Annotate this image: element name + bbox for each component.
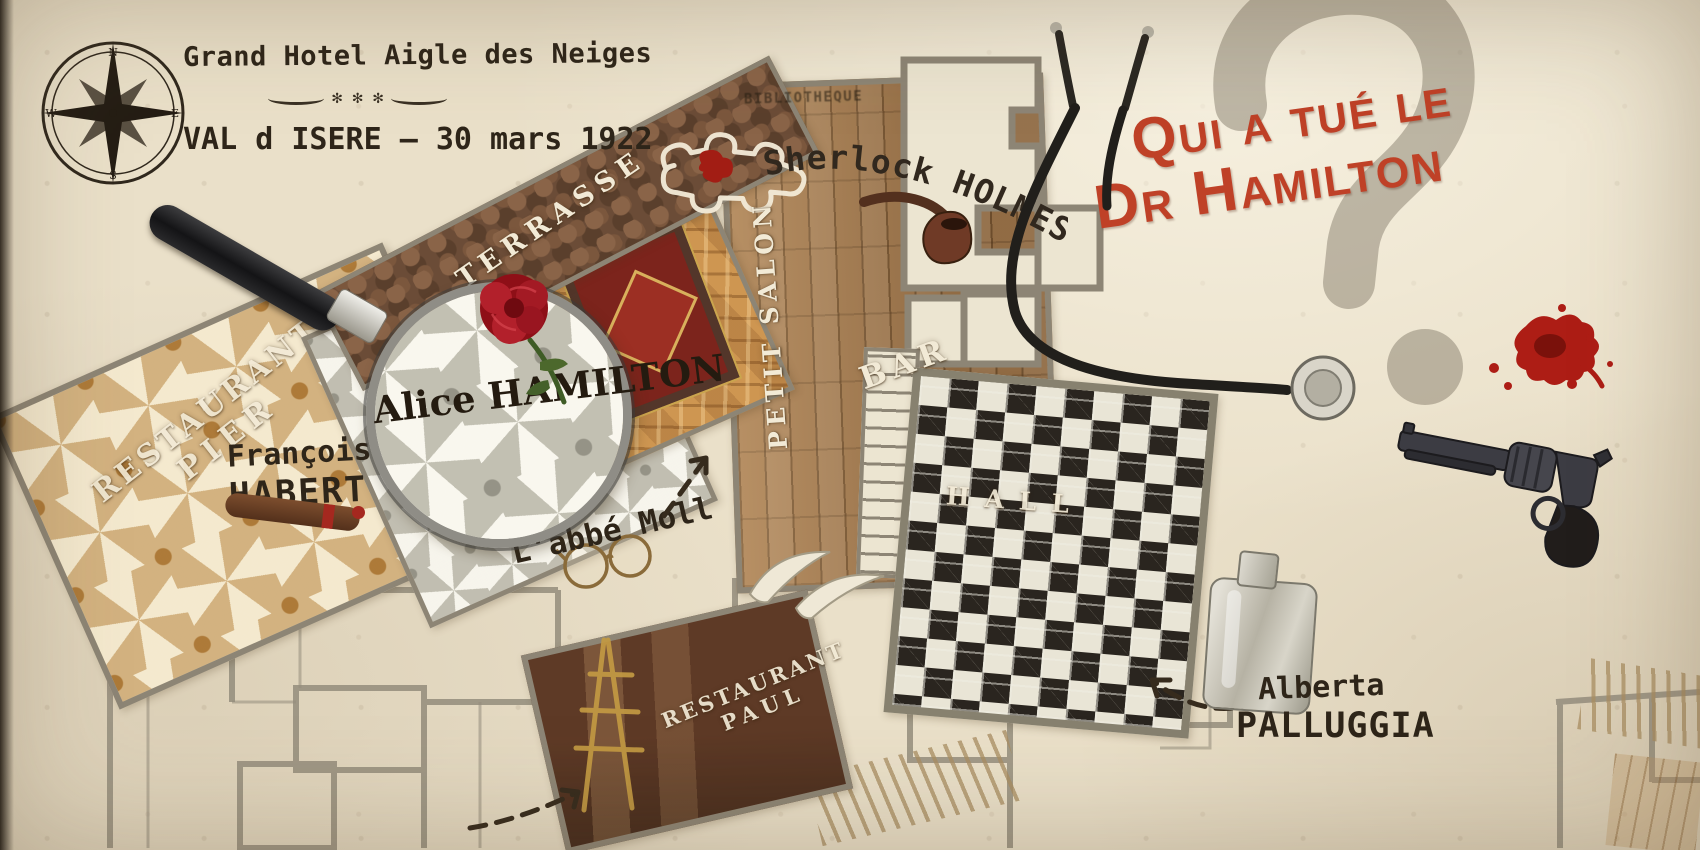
red-rose	[452, 262, 587, 412]
compass-rose: N E S W	[38, 38, 188, 188]
suspect-alberta-last: PALLUGGIA	[1236, 706, 1435, 746]
room-label-restaurant-paul: RESTAURANT PAUL	[658, 636, 859, 756]
svg-text:W: W	[45, 107, 57, 120]
curved-bone-shapes	[738, 538, 898, 628]
svg-text:S: S	[109, 169, 117, 182]
hip-flask-cap	[1236, 550, 1280, 590]
easel-sketch	[546, 628, 661, 818]
corner-floor-fragment	[1605, 754, 1700, 850]
svg-text:N: N	[108, 46, 118, 59]
ornament-glyphs: ✻ ✻ ✻	[332, 88, 383, 108]
cigar-ember	[352, 506, 365, 519]
stethoscope	[935, 8, 1405, 458]
suspect-alberta-first: Alberta	[1257, 668, 1385, 707]
blood-splatter	[1478, 298, 1618, 413]
location-date: VAL d ISERE – 30 mars 1922	[183, 122, 653, 157]
francois-first-name: François	[226, 432, 372, 475]
faint-room-label: BIBLIOTHEQUE	[744, 88, 864, 107]
header-ornament: ✻ ✻ ✻	[268, 88, 447, 108]
hotel-name: Grand Hotel Aigle des Neiges	[183, 38, 652, 73]
mystery-map-poster: RESTAURANT PIER TERRASSE RESTAURANT PAUL	[0, 0, 1700, 850]
svg-text:E: E	[171, 107, 179, 120]
revolver	[1392, 398, 1622, 573]
